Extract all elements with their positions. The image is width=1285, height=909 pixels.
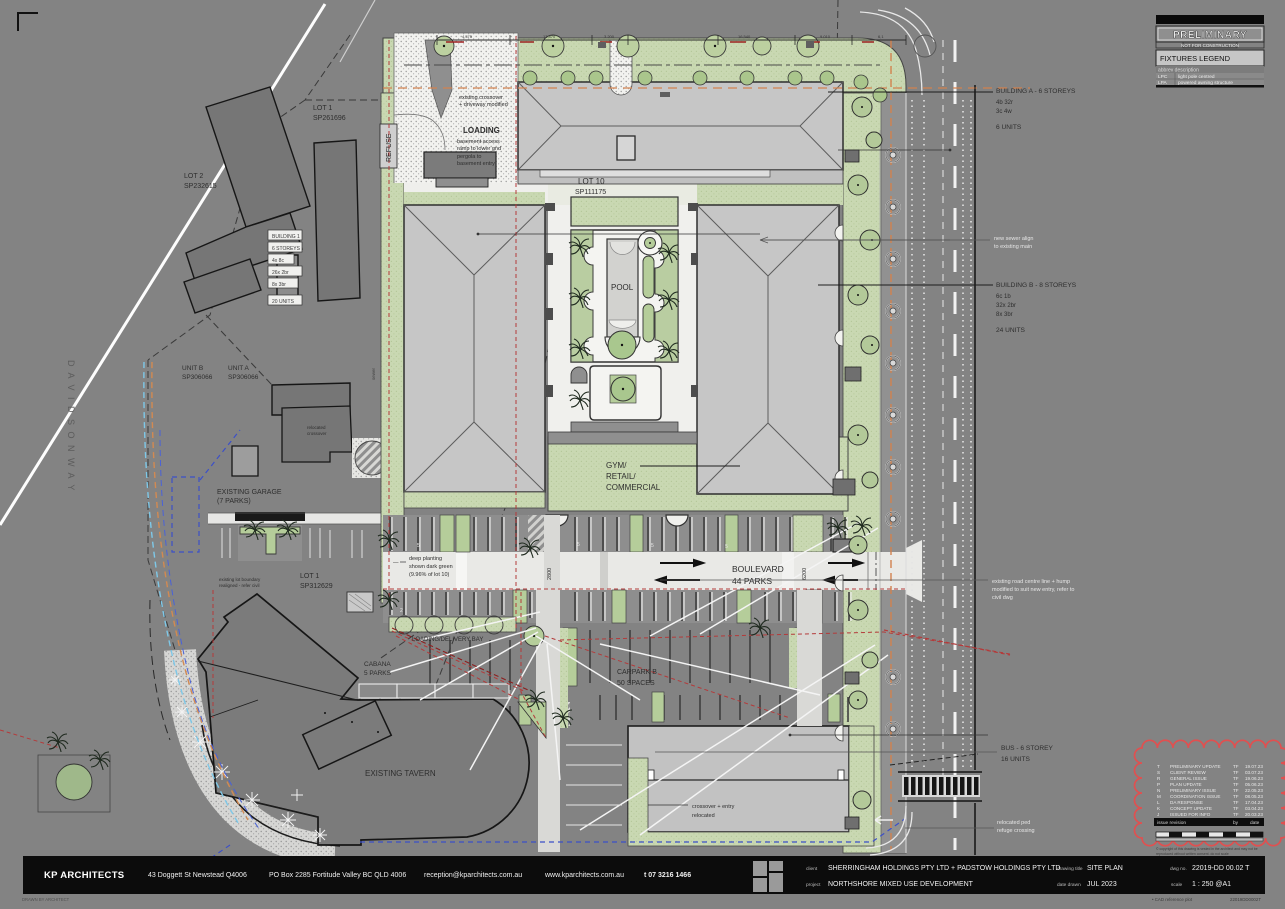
svg-text:UNIT A: UNIT A bbox=[228, 365, 249, 372]
svg-text:reproduced without written con: reproduced without written consent. do n… bbox=[1156, 852, 1229, 856]
svg-text:BUILDING 1: BUILDING 1 bbox=[272, 234, 300, 240]
svg-text:2: 2 bbox=[400, 608, 403, 614]
svg-text:reception@kparchitects.com.au: reception@kparchitects.com.au bbox=[424, 872, 522, 879]
svg-text:4x 8c: 4x 8c bbox=[272, 258, 284, 264]
svg-text:ISSUED FOR INFO: ISSUED FOR INFO bbox=[1170, 812, 1211, 817]
svg-text:by: by bbox=[1233, 820, 1239, 826]
svg-text:NORTHSHORE MIXED USE DEVELOPME: NORTHSHORE MIXED USE DEVELOPMENT bbox=[828, 881, 974, 888]
svg-text:• CAD reference plot: • CAD reference plot bbox=[1152, 897, 1193, 902]
svg-text:TF: TF bbox=[1233, 770, 1239, 775]
svg-text:SITE PLAN: SITE PLAN bbox=[1087, 865, 1123, 872]
svg-text:GYM/: GYM/ bbox=[606, 461, 627, 470]
svg-text:PRELIMINARY ISSUE: PRELIMINARY ISSUE bbox=[1170, 788, 1216, 793]
svg-text:basement access: basement access bbox=[457, 139, 500, 145]
svg-text:GENERAL ISSUE: GENERAL ISSUE bbox=[1170, 776, 1207, 781]
svg-text:5: 5 bbox=[651, 543, 654, 549]
svg-text:44 PARKS: 44 PARKS bbox=[732, 576, 772, 586]
svg-text:TF: TF bbox=[1233, 782, 1239, 787]
svg-text:TF: TF bbox=[1233, 776, 1239, 781]
svg-text:realigned - refer civil: realigned - refer civil bbox=[219, 583, 260, 588]
svg-text:5 PARKS: 5 PARKS bbox=[364, 670, 392, 677]
svg-text:4b 32r: 4b 32r bbox=[996, 100, 1013, 106]
svg-text:(7 PARKS): (7 PARKS) bbox=[217, 498, 251, 505]
svg-text:SP232615: SP232615 bbox=[184, 183, 217, 190]
svg-text:19.07.23: 19.07.23 bbox=[1245, 764, 1263, 769]
svg-text:TF: TF bbox=[1233, 800, 1239, 805]
svg-text:abbrev description: abbrev description bbox=[1158, 68, 1199, 74]
svg-text:BUILDING B - 8 STOREYS: BUILDING B - 8 STOREYS bbox=[996, 282, 1077, 289]
svg-text:20 UNITS: 20 UNITS bbox=[272, 299, 295, 305]
svg-text:relocated ped: relocated ped bbox=[997, 820, 1030, 826]
svg-text:sewer: sewer bbox=[371, 367, 376, 380]
svg-text:L: L bbox=[1157, 800, 1160, 805]
svg-text:www.kparchitects.com.au: www.kparchitects.com.au bbox=[544, 872, 624, 879]
svg-text:basement entry: basement entry bbox=[457, 161, 495, 167]
svg-text:6,1: 6,1 bbox=[878, 34, 884, 39]
svg-text:CABANA: CABANA bbox=[364, 661, 391, 668]
svg-text:3c 4w: 3c 4w bbox=[996, 109, 1012, 115]
svg-text:M: M bbox=[1157, 794, 1161, 799]
svg-text:POOL: POOL bbox=[611, 283, 634, 292]
svg-text:LOT 1: LOT 1 bbox=[313, 105, 332, 112]
svg-text:03.07.23: 03.07.23 bbox=[1245, 770, 1263, 775]
svg-text:LOT 1: LOT 1 bbox=[300, 573, 319, 580]
svg-text:+ driveway modified: + driveway modified bbox=[459, 102, 508, 108]
svg-text:6c 1b: 6c 1b bbox=[996, 294, 1011, 300]
svg-text:light pole centred: light pole centred bbox=[1178, 74, 1215, 80]
svg-text:6200: 6200 bbox=[802, 568, 808, 580]
svg-text:2800: 2800 bbox=[547, 568, 553, 580]
svg-text:P: P bbox=[1157, 782, 1160, 787]
svg-text:PO Box 2285 Fortitude Valley B: PO Box 2285 Fortitude Valley BC QLD 4006 bbox=[269, 872, 406, 879]
svg-text:16,540: 16,540 bbox=[738, 34, 751, 39]
svg-text:SP306066: SP306066 bbox=[228, 374, 259, 381]
svg-text:NOT FOR CONSTRUCTION: NOT FOR CONSTRUCTION bbox=[1181, 43, 1239, 48]
svg-text:TF: TF bbox=[1233, 788, 1239, 793]
svg-text:BUILDING A - 6 STOREYS: BUILDING A - 6 STOREYS bbox=[996, 88, 1076, 95]
svg-text:T: T bbox=[1157, 764, 1160, 769]
svg-text:SP111175: SP111175 bbox=[575, 189, 606, 196]
svg-text:20.03.23: 20.03.23 bbox=[1245, 812, 1263, 817]
svg-text:5: 5 bbox=[577, 542, 580, 548]
svg-text:COORDINATION ISSUE: COORDINATION ISSUE bbox=[1170, 794, 1220, 799]
svg-text:5: 5 bbox=[725, 544, 728, 550]
svg-text:SP312629: SP312629 bbox=[300, 583, 333, 590]
svg-text:CONCEPT UPDATE: CONCEPT UPDATE bbox=[1170, 806, 1212, 811]
svg-text:DA RESPONSE: DA RESPONSE bbox=[1170, 800, 1203, 805]
svg-text:22019-DD 00.02 T: 22019-DD 00.02 T bbox=[1192, 865, 1250, 872]
svg-text:LOADING/DELIVERY BAY: LOADING/DELIVERY BAY bbox=[412, 637, 483, 643]
svg-text:TF: TF bbox=[1233, 806, 1239, 811]
svg-text:—: — bbox=[393, 560, 399, 566]
svg-text:refuge crossing: refuge crossing bbox=[997, 828, 1035, 834]
svg-text:UNIT B: UNIT B bbox=[182, 365, 203, 372]
svg-text:PRELIMINARY: PRELIMINARY bbox=[1173, 30, 1247, 41]
svg-text:deep planting: deep planting bbox=[409, 556, 442, 562]
svg-text:LOT 2: LOT 2 bbox=[184, 173, 203, 180]
svg-text:50 SPACES: 50 SPACES bbox=[617, 680, 655, 687]
svg-text:LOT 10: LOT 10 bbox=[578, 177, 605, 186]
svg-text:SP306066: SP306066 bbox=[182, 374, 213, 381]
svg-text:© copyright of this drawing is: © copyright of this drawing is vested in… bbox=[1156, 847, 1258, 851]
svg-text:PLAN UPDATE: PLAN UPDATE bbox=[1170, 782, 1202, 787]
svg-text:CARPARK B: CARPARK B bbox=[617, 669, 657, 676]
svg-text:scale: scale bbox=[1171, 882, 1183, 888]
svg-text:BOULEVARD: BOULEVARD bbox=[732, 564, 784, 574]
svg-text:08.05.23: 08.05.23 bbox=[1245, 794, 1263, 799]
svg-text:22.05.23: 22.05.23 bbox=[1245, 788, 1263, 793]
svg-text:date: date bbox=[1250, 820, 1260, 826]
svg-text:modified to suit new entry, re: modified to suit new entry, refer to bbox=[992, 587, 1074, 593]
svg-text:powered awning structure: powered awning structure bbox=[1178, 80, 1233, 86]
svg-text:DRAWN BY ARCHITECT: DRAWN BY ARCHITECT bbox=[22, 897, 70, 902]
svg-text:J: J bbox=[1157, 812, 1159, 817]
svg-text:ramp to lower gnd: ramp to lower gnd bbox=[457, 146, 501, 152]
svg-text:13,870: 13,870 bbox=[543, 34, 556, 39]
svg-text:8x 3br: 8x 3br bbox=[272, 282, 286, 288]
svg-text:drawing title: drawing title bbox=[1057, 866, 1083, 872]
svg-text:pergola to: pergola to bbox=[457, 154, 481, 160]
svg-text:1 : 250 @A1: 1 : 250 @A1 bbox=[1192, 881, 1231, 888]
svg-text:8x 3br: 8x 3br bbox=[996, 312, 1013, 318]
svg-text:4,575: 4,575 bbox=[462, 34, 473, 39]
svg-text:COMMERCIAL: COMMERCIAL bbox=[606, 483, 661, 492]
svg-text:26x 2br: 26x 2br bbox=[272, 270, 289, 276]
svg-text:BUS - 6 STOREY: BUS - 6 STOREY bbox=[1001, 745, 1054, 752]
svg-text:24 UNITS: 24 UNITS bbox=[996, 327, 1026, 334]
svg-text:D A V I D S O N W A Y: D A V I D S O N W A Y bbox=[66, 360, 76, 492]
svg-text:SHERRINGHAM HOLDINGS PTY LTD +: SHERRINGHAM HOLDINGS PTY LTD + PADSTOW H… bbox=[828, 865, 1060, 872]
svg-text:dwg no.: dwg no. bbox=[1170, 866, 1187, 872]
svg-text:16 UNITS: 16 UNITS bbox=[1001, 756, 1031, 763]
svg-text:5: 5 bbox=[417, 543, 420, 549]
svg-text:LOADING: LOADING bbox=[463, 126, 500, 135]
svg-text:SP261696: SP261696 bbox=[313, 115, 346, 122]
svg-text:LPC: LPC bbox=[1158, 74, 1168, 80]
svg-text:6 UNITS: 6 UNITS bbox=[996, 124, 1022, 131]
svg-text:TF: TF bbox=[1233, 764, 1239, 769]
svg-text:to existing main: to existing main bbox=[994, 244, 1032, 250]
svg-text:43 Doggett St Newstead Q4006: 43 Doggett St Newstead Q4006 bbox=[148, 872, 247, 879]
svg-text:shown dark green: shown dark green bbox=[409, 564, 453, 570]
svg-text:relocated: relocated bbox=[307, 425, 326, 430]
svg-text:19.06.23: 19.06.23 bbox=[1245, 776, 1263, 781]
svg-text:9,010: 9,010 bbox=[820, 34, 831, 39]
svg-text:3,200: 3,200 bbox=[604, 34, 615, 39]
svg-text:FIXTURES LEGEND: FIXTURES LEGEND bbox=[1160, 54, 1231, 63]
svg-text:new sewer align: new sewer align bbox=[994, 236, 1033, 242]
svg-text:REFUSE: REFUSE bbox=[386, 133, 393, 162]
svg-text:(9.96% of lot 10): (9.96% of lot 10) bbox=[409, 572, 450, 578]
svg-text:05.06.23: 05.06.23 bbox=[1245, 782, 1263, 787]
svg-text:EXISTING TAVERN: EXISTING TAVERN bbox=[365, 769, 436, 778]
svg-text:existing lot boundary: existing lot boundary bbox=[219, 577, 261, 582]
svg-text:6 STOREYS: 6 STOREYS bbox=[272, 246, 301, 252]
svg-text:N: N bbox=[1157, 788, 1160, 793]
svg-text:existing crossover: existing crossover bbox=[459, 95, 503, 101]
svg-text:32x 2br: 32x 2br bbox=[996, 303, 1016, 309]
svg-text:relocated: relocated bbox=[692, 813, 715, 819]
svg-text:03.04.23: 03.04.23 bbox=[1245, 806, 1263, 811]
svg-text:existing road centre line + hu: existing road centre line + hump bbox=[992, 579, 1070, 585]
svg-text:client: client bbox=[806, 866, 818, 872]
svg-text:issue revision: issue revision bbox=[1157, 820, 1186, 826]
svg-text:PRELIMINARY UPDATE: PRELIMINARY UPDATE bbox=[1170, 764, 1221, 769]
svg-text:project: project bbox=[806, 882, 821, 888]
svg-text:JUL 2023: JUL 2023 bbox=[1087, 881, 1117, 888]
svg-text:t 07 3216 1466: t 07 3216 1466 bbox=[644, 872, 691, 879]
svg-text:civil dwg: civil dwg bbox=[992, 595, 1013, 601]
svg-text:17.04.23: 17.04.23 bbox=[1245, 800, 1263, 805]
svg-text:CLIENT REVIEW: CLIENT REVIEW bbox=[1170, 770, 1206, 775]
svg-text:TF: TF bbox=[1233, 812, 1239, 817]
svg-text:22019DD0002T: 22019DD0002T bbox=[1230, 897, 1261, 902]
svg-text:crossover + entry: crossover + entry bbox=[692, 804, 735, 810]
svg-text:crossover: crossover bbox=[307, 431, 327, 436]
svg-text:LPA: LPA bbox=[1158, 80, 1168, 86]
svg-text:date drawn: date drawn bbox=[1057, 882, 1081, 888]
svg-text:S: S bbox=[1157, 770, 1160, 775]
svg-text:EXISTING GARAGE: EXISTING GARAGE bbox=[217, 489, 282, 496]
svg-text:KP ARCHITECTS: KP ARCHITECTS bbox=[44, 870, 124, 881]
svg-text:RETAIL/: RETAIL/ bbox=[606, 472, 636, 481]
svg-text:TF: TF bbox=[1233, 794, 1239, 799]
